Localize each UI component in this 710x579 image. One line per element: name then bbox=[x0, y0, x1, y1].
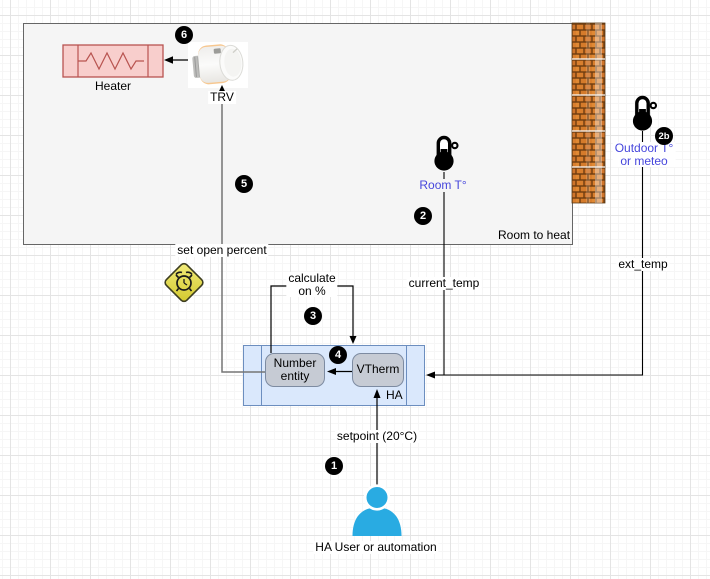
outdoor-sensor-label-line2: or meteo bbox=[615, 155, 674, 168]
calculate-label: calculate on % bbox=[286, 272, 337, 297]
step-badge-2[interactable]: 2 bbox=[414, 207, 432, 225]
step-badge-2b[interactable]: 2b bbox=[655, 127, 673, 145]
ha-right-divider bbox=[406, 346, 407, 405]
calculate-label-line1: calculate bbox=[288, 272, 335, 285]
vtherm-node[interactable]: VTherm bbox=[352, 353, 404, 387]
step-badge-3[interactable]: 3 bbox=[304, 307, 322, 325]
step-badge-4[interactable]: 4 bbox=[329, 346, 347, 364]
room-sensor-label: Room T° bbox=[417, 179, 468, 192]
step-badge-1[interactable]: 1 bbox=[325, 457, 343, 475]
user-icon[interactable] bbox=[353, 486, 402, 536]
trv-label: TRV bbox=[208, 91, 236, 104]
number-entity-label: Number entity bbox=[266, 357, 324, 384]
diagram-canvas: Number entity VTherm bbox=[0, 0, 710, 579]
set-open-percent-label: set open percent bbox=[175, 244, 268, 257]
user-label: HA User or automation bbox=[313, 541, 438, 554]
current-temp-label: current_temp bbox=[407, 277, 482, 290]
room-to-heat-label: Room to heat bbox=[498, 229, 570, 242]
number-entity-node[interactable]: Number entity bbox=[265, 353, 325, 387]
ext-temp-label: ext_temp bbox=[616, 258, 669, 271]
brick-wall[interactable] bbox=[572, 23, 605, 203]
setpoint-label: setpoint (20°C) bbox=[335, 430, 419, 443]
vtherm-label: VTherm bbox=[357, 363, 400, 376]
room-to-heat-box[interactable] bbox=[23, 23, 573, 245]
calculate-label-line2: on % bbox=[288, 285, 335, 298]
ha-label: HA bbox=[386, 389, 403, 402]
outdoor-sensor-label: Outdoor T° or meteo bbox=[613, 142, 676, 167]
ha-left-divider bbox=[261, 346, 262, 405]
alarm-diamond-icon[interactable] bbox=[163, 262, 204, 303]
heater-label: Heater bbox=[95, 80, 131, 93]
step-badge-5[interactable]: 5 bbox=[235, 175, 253, 193]
step-badge-6[interactable]: 6 bbox=[175, 26, 193, 44]
outdoor-temp-icon[interactable] bbox=[633, 98, 656, 131]
